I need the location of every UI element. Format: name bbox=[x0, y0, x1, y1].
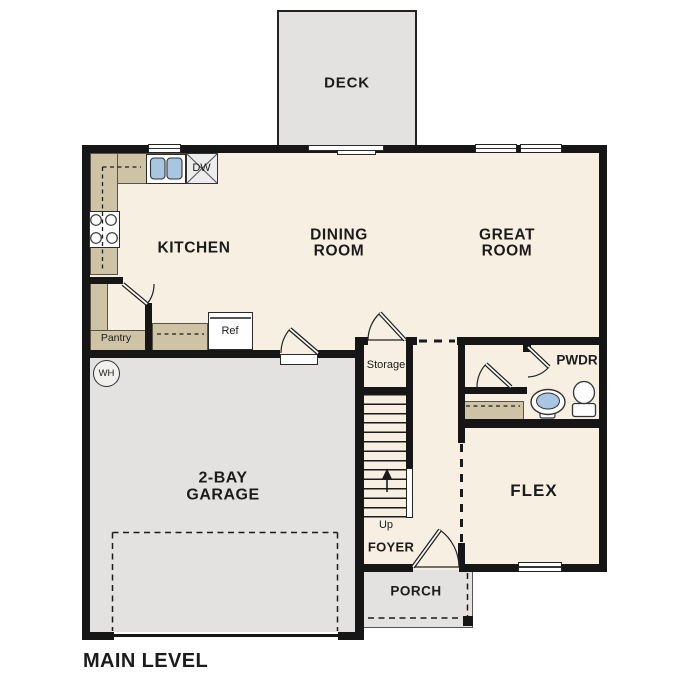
up-arrow-icon bbox=[382, 469, 393, 493]
dishwasher-label: DW bbox=[192, 162, 210, 174]
room-label-storage: Storage bbox=[367, 359, 406, 371]
stove-burners-icon bbox=[91, 215, 118, 244]
room-label-foyer: FOYER bbox=[368, 540, 414, 555]
room-label-pwdr: PWDR bbox=[556, 353, 597, 368]
cased-opening-dashes bbox=[419, 341, 462, 542]
garage-door-dashes bbox=[113, 533, 338, 632]
hall-door bbox=[477, 364, 486, 387]
room-label-great: GREAT ROOM bbox=[479, 228, 535, 259]
floor-plan: WH bbox=[0, 0, 687, 687]
stairs-up-label: Up bbox=[379, 519, 393, 531]
plan-title: MAIN LEVEL bbox=[83, 650, 208, 673]
pantry-door bbox=[147, 284, 154, 304]
pedestal-sink bbox=[531, 390, 565, 419]
room-label-garage: 2-BAY GARAGE bbox=[186, 471, 259, 504]
room-label-pantry: Pantry bbox=[101, 332, 131, 344]
garage-entry-door bbox=[281, 329, 290, 353]
room-label-flex: FLEX bbox=[510, 481, 557, 501]
doors bbox=[123, 284, 549, 567]
toilet bbox=[573, 382, 596, 417]
room-label-kitchen: KITCHEN bbox=[157, 240, 230, 256]
pwdr-door bbox=[528, 367, 549, 377]
refrigerator-label: Ref bbox=[221, 325, 238, 337]
dashed-cabinet-lines bbox=[103, 167, 521, 406]
room-label-porch: PORCH bbox=[390, 584, 441, 599]
room-label-dining: DINING ROOM bbox=[310, 228, 368, 259]
sink-basins bbox=[151, 158, 183, 179]
room-label-deck: DECK bbox=[324, 75, 370, 92]
